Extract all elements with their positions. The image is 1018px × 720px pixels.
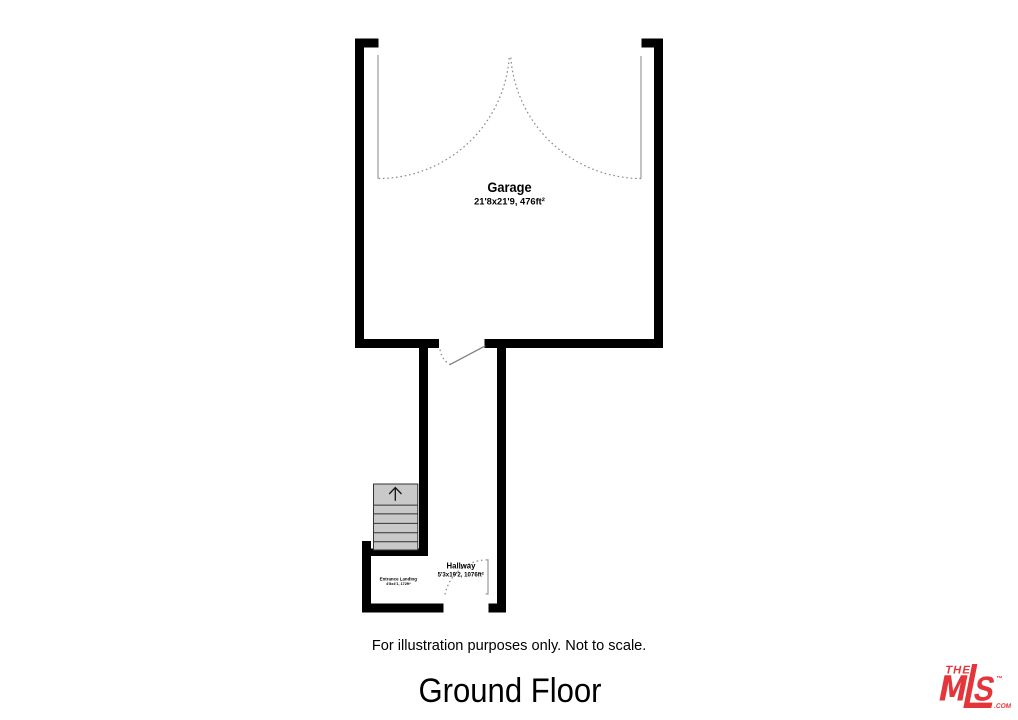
svg-text:Garage: Garage xyxy=(487,179,531,195)
svg-text:4'8x4'1, 172ft²: 4'8x4'1, 172ft² xyxy=(386,582,411,586)
svg-text:Ground Floor: Ground Floor xyxy=(419,672,602,710)
svg-text:For illustration purposes only: For illustration purposes only. Not to s… xyxy=(372,638,647,654)
svg-text:5'3x19'2, 1076ft²: 5'3x19'2, 1076ft² xyxy=(438,572,484,579)
svg-text:THE: THE xyxy=(944,664,971,676)
svg-text:Entrance Landing: Entrance Landing xyxy=(380,576,417,581)
svg-text:Hallway: Hallway xyxy=(447,561,476,571)
svg-text:™: ™ xyxy=(995,676,1003,683)
svg-text:21'8x21'9, 476ft²: 21'8x21'9, 476ft² xyxy=(474,197,545,208)
svg-text:.COM: .COM xyxy=(993,703,1012,710)
